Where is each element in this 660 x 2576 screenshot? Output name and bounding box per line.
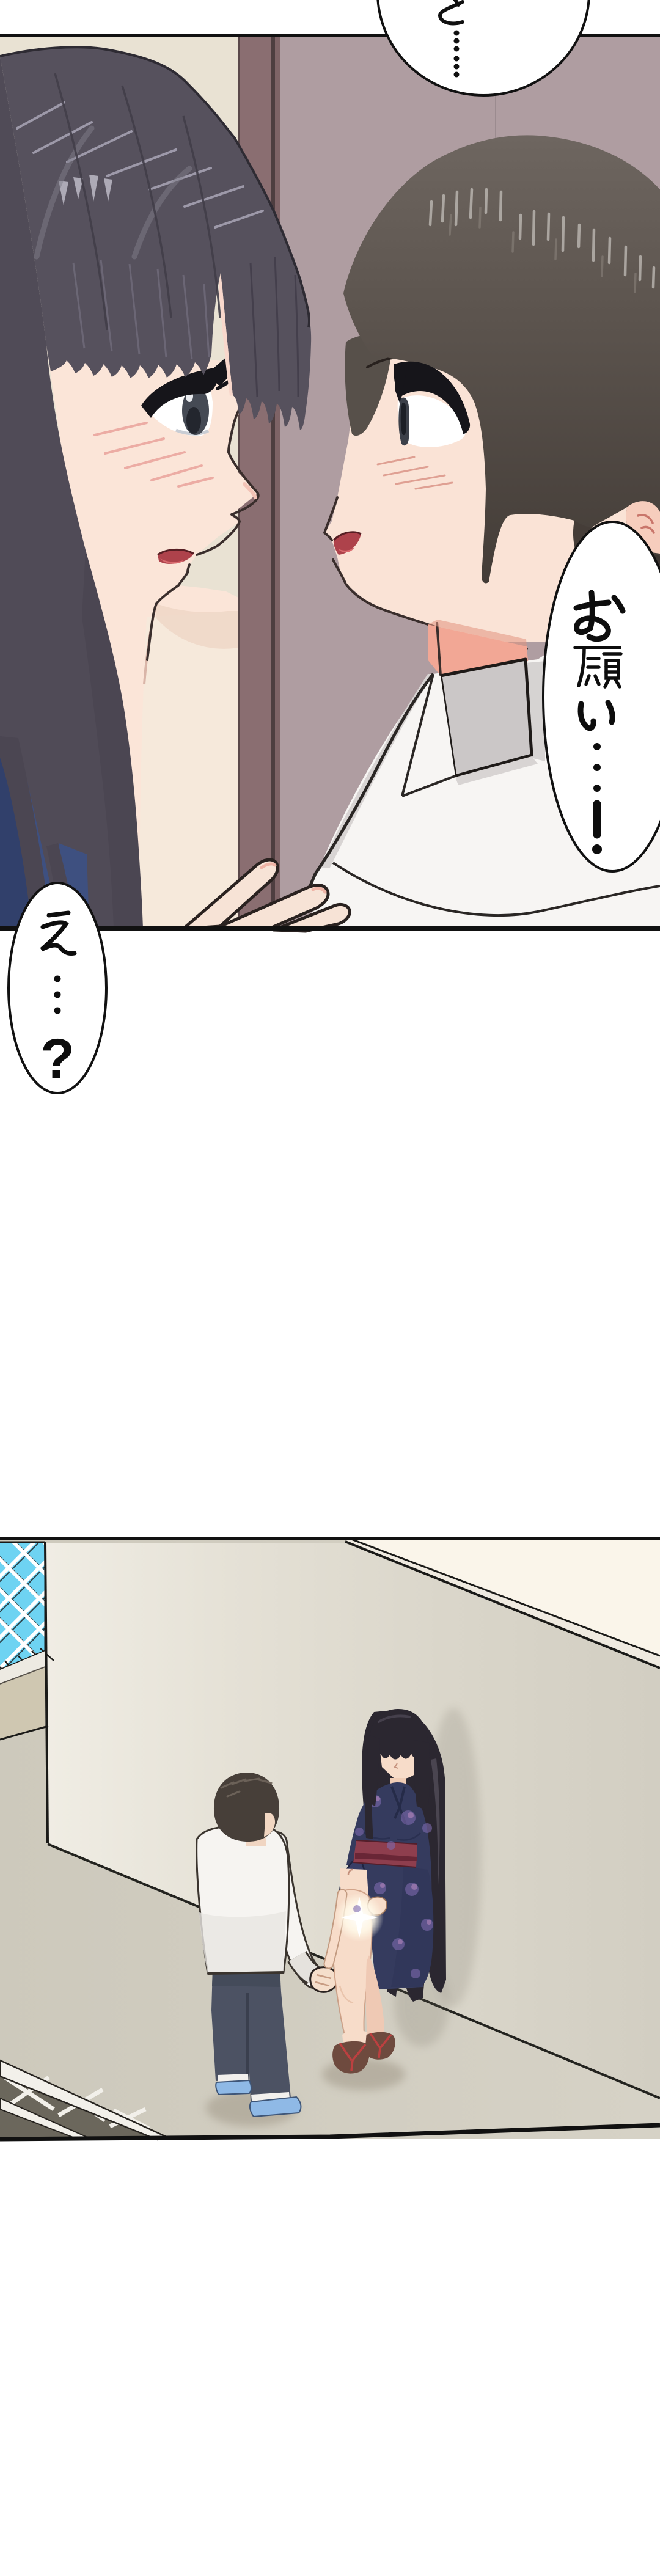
svg-text:?: ? <box>40 1028 75 1090</box>
